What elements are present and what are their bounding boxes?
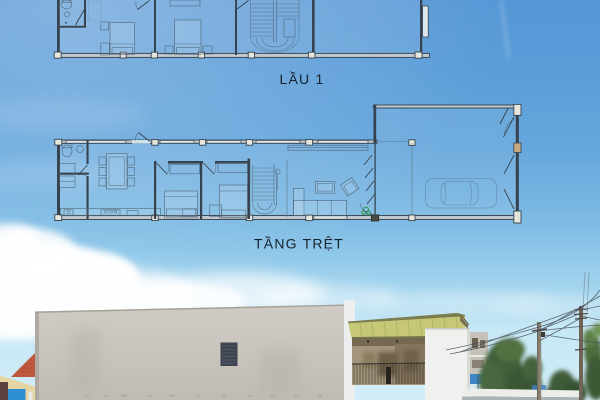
svg-text:LẦU 1: LẦU 1 <box>280 71 325 87</box>
svg-text:TẦNG TRỆT: TẦNG TRỆT <box>254 236 344 252</box>
